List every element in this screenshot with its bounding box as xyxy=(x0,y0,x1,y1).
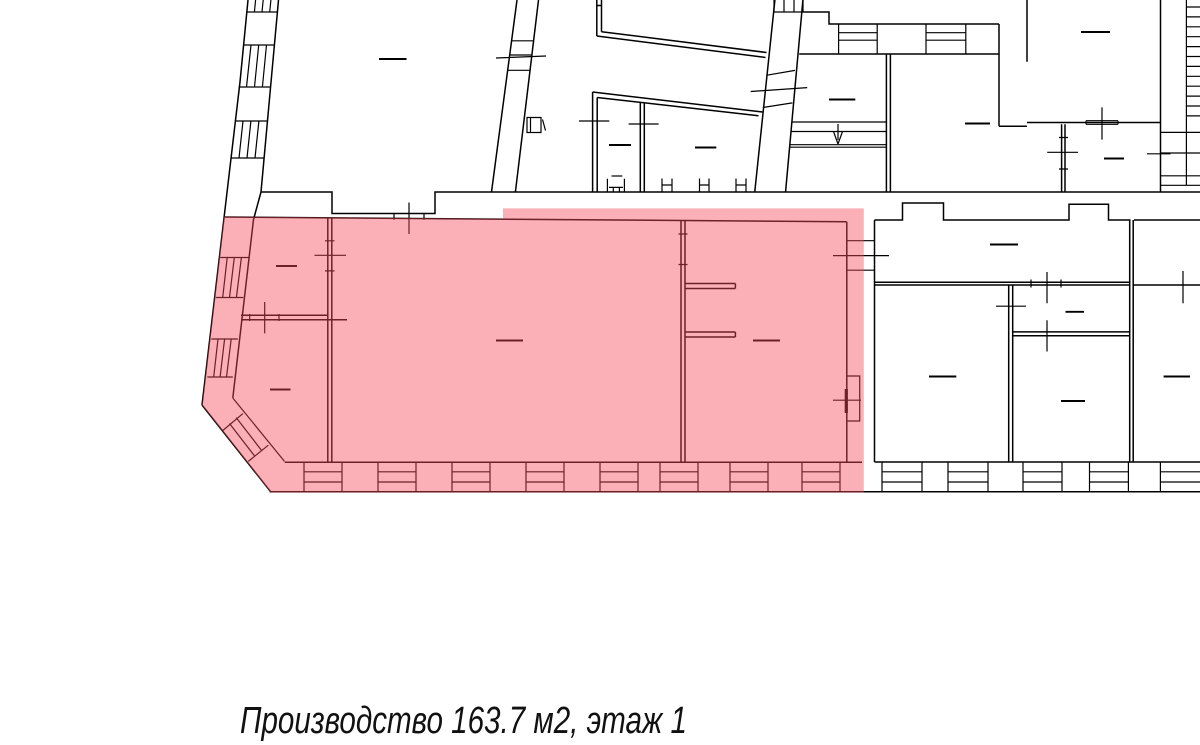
svg-text:Производство 163.7 м2, этаж 1: Производство 163.7 м2, этаж 1 xyxy=(240,700,687,742)
